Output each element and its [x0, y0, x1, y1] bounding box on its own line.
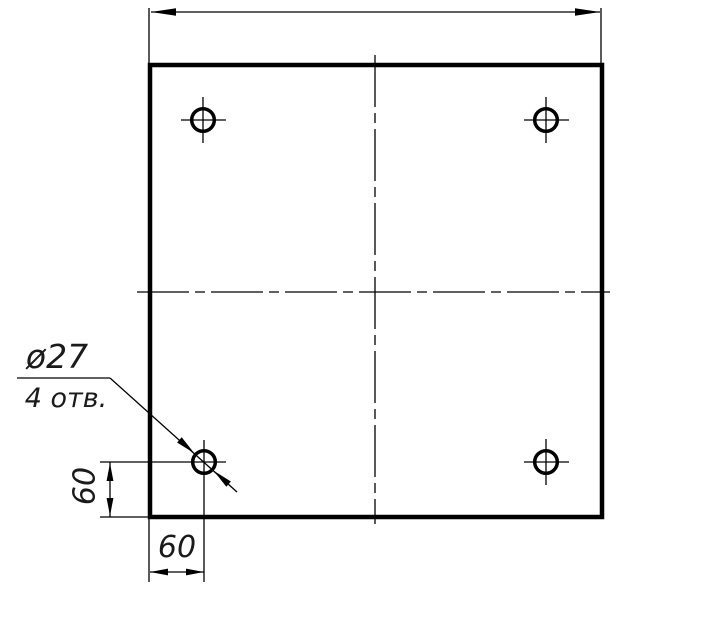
dimension-top-width: [149, 8, 601, 63]
callout-diameter-label: ø27: [25, 337, 88, 376]
dimension-top-arrow-left-icon: [151, 8, 176, 16]
dimension-x-arrow-left-icon: [150, 569, 168, 576]
dimension-x-value: 60: [158, 530, 196, 565]
callout-arrow-upper-icon: [177, 437, 194, 453]
drawing-canvas: 60 60 ø27 4 отв.: [0, 0, 713, 631]
plate-drawing-svg: 60 60 ø27 4 отв.: [0, 0, 713, 631]
dimension-hole-offset-y: 60: [68, 462, 151, 517]
dimension-top-arrow-right-icon: [575, 8, 600, 16]
callout-count-label: 4 отв.: [25, 383, 108, 414]
dimension-y-arrow-down-icon: [107, 498, 114, 516]
holes: [100, 97, 569, 582]
dimension-y-value: 60: [68, 467, 103, 505]
hole-top-right: [524, 97, 569, 143]
dimension-x-arrow-right-icon: [186, 569, 204, 576]
hole-bottom-right: [524, 439, 569, 485]
hole-top-left: [181, 97, 226, 143]
plate-outline: [150, 65, 602, 517]
plate: [150, 65, 602, 517]
dimension-y-arrow-up-icon: [107, 463, 114, 481]
dimension-hole-offset-x: 60: [149, 519, 204, 582]
callout-arrow-lower-icon: [214, 471, 231, 487]
